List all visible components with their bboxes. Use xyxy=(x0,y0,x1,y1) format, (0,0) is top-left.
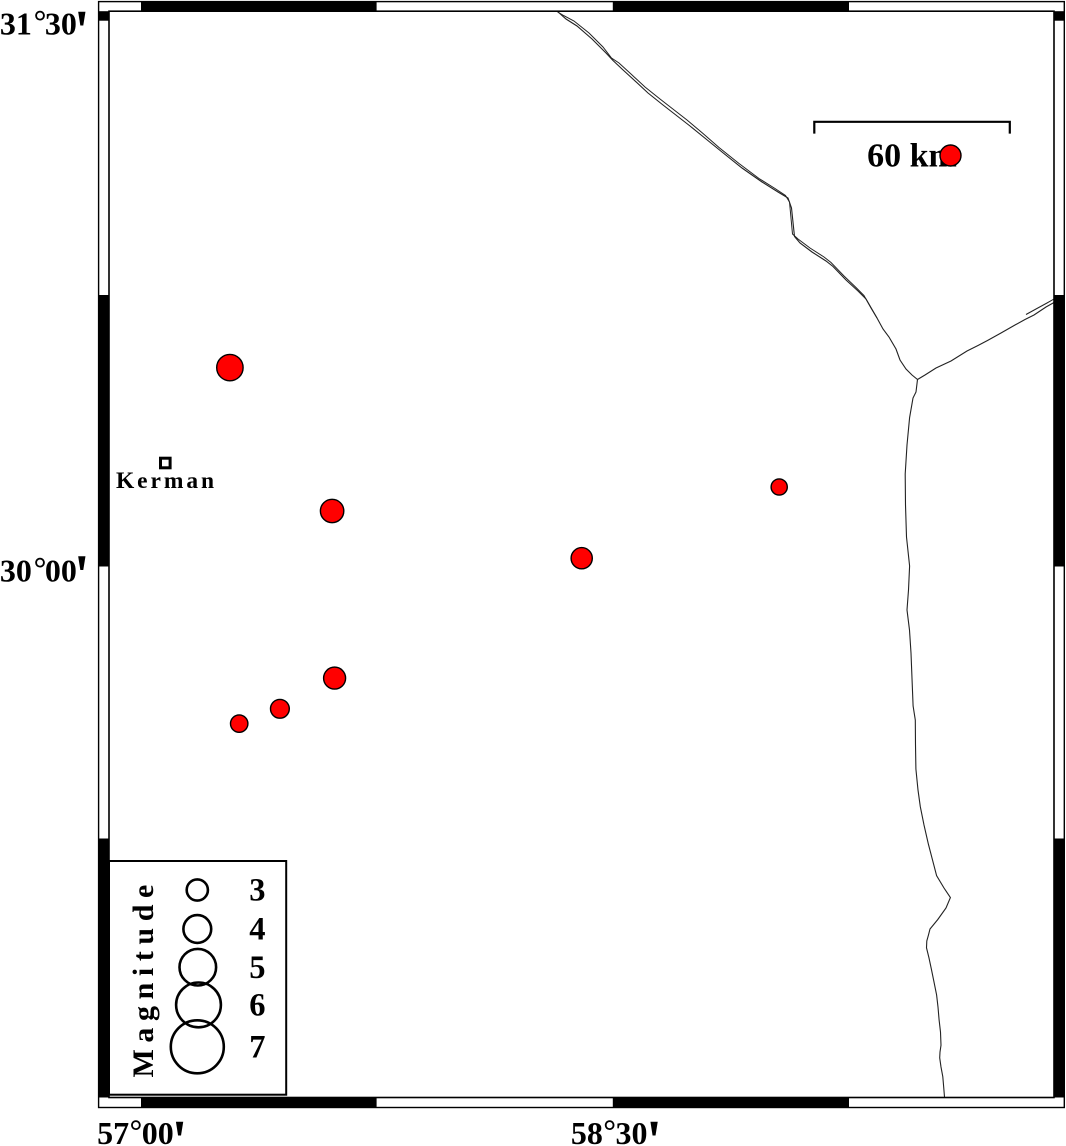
svg-text:5: 5 xyxy=(249,950,265,986)
svg-text:': ' xyxy=(646,1108,662,1146)
svg-text:57: 57 xyxy=(97,1115,129,1146)
svg-text:°: ° xyxy=(130,1113,143,1146)
svg-text:30: 30 xyxy=(0,552,32,588)
svg-text:Magnitude: Magnitude xyxy=(127,878,160,1077)
svg-text:': ' xyxy=(74,543,90,608)
svg-text:58: 58 xyxy=(571,1115,603,1146)
svg-text:': ' xyxy=(74,0,90,63)
svg-text:°: ° xyxy=(603,1113,616,1146)
svg-text:7: 7 xyxy=(249,1029,265,1065)
svg-text:3: 3 xyxy=(249,873,265,909)
svg-text:Kerman: Kerman xyxy=(116,468,217,494)
svg-text:4: 4 xyxy=(249,912,265,948)
svg-text:00: 00 xyxy=(142,1115,174,1146)
svg-text:6: 6 xyxy=(249,988,265,1024)
svg-text:': ' xyxy=(172,1108,188,1146)
svg-text:31: 31 xyxy=(0,5,32,41)
svg-text:30: 30 xyxy=(45,5,77,41)
svg-text:00: 00 xyxy=(45,552,77,588)
svg-text:30: 30 xyxy=(616,1115,648,1146)
